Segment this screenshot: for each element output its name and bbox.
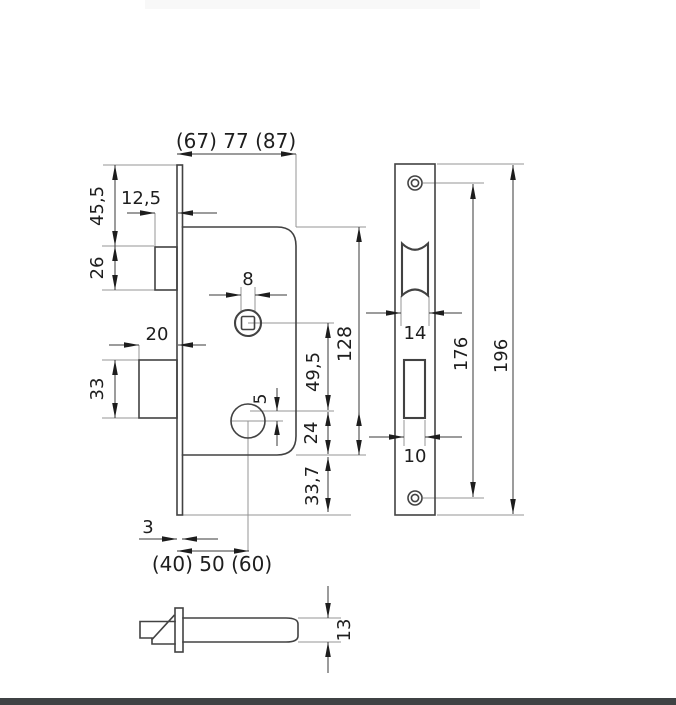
- dim-case-height: 128: [334, 227, 362, 455]
- dim-label-screw-hole-spacing: 176: [451, 337, 472, 371]
- dim-top-to-latch: 45,5: [87, 165, 118, 246]
- dim-ref-to-case-bottom: 24: [301, 412, 331, 454]
- dim-case-depth: (67) 77 (87): [176, 129, 296, 157]
- dim-plate-length: 196: [491, 165, 516, 514]
- dim-label-latch-cutout-width: 14: [404, 323, 427, 344]
- case-profile-outline: [183, 618, 298, 642]
- latch-bolt-body: [155, 247, 177, 290]
- screw-hole-bottom-inner: [411, 494, 418, 501]
- dim-backset: (40) 50 (60): [152, 548, 272, 576]
- dead-bolt-body: [139, 360, 177, 418]
- dim-screw-hole-spacing: 176: [451, 184, 476, 497]
- screw-hole-top: [408, 176, 422, 190]
- faceplate-profile: [175, 608, 183, 652]
- dim-latch-protrusion: 12,5: [121, 188, 217, 216]
- technical-drawing: (67) 77 (87) 45,5 26 12,5: [0, 0, 676, 698]
- screw-hole-bottom: [408, 491, 422, 505]
- faceplate-edge: [177, 165, 183, 515]
- dim-label-case-thickness: 13: [334, 619, 355, 642]
- screw-hole-top-inner: [411, 179, 418, 186]
- bottom-profile-view: [140, 608, 298, 652]
- dim-label-case-to-plate-bottom: 33,7: [302, 466, 323, 506]
- dim-bolt-cutout-width: 10: [369, 434, 462, 467]
- dim-bolt-protrusion: 20: [109, 324, 206, 348]
- dim-label-plate-length: 196: [491, 339, 512, 373]
- drawing-page: (67) 77 (87) 45,5 26 12,5: [0, 0, 676, 705]
- dim-label-case-height: 128: [334, 326, 356, 362]
- dim-label-bolt-protrusion: 20: [146, 324, 169, 345]
- latch-profile: [140, 616, 175, 645]
- footer-bar: [0, 698, 676, 705]
- dim-label-top-to-latch: 45,5: [87, 186, 108, 226]
- dim-label-spindle-square: 8: [242, 269, 253, 290]
- dim-label-plate-thickness: 3: [142, 517, 153, 538]
- latch-cutout: [402, 244, 428, 296]
- dim-bolt-height: 33: [87, 360, 118, 418]
- dim-latch-cutout-width: 14: [366, 310, 462, 344]
- dim-spindle-to-ref: 49,5: [303, 323, 331, 410]
- dim-label-bolt-cutout-width: 10: [404, 446, 427, 467]
- bolt-cutout: [404, 360, 425, 418]
- dim-label-backset: (40) 50 (60): [152, 552, 272, 576]
- dim-latch-height: 26: [87, 246, 118, 290]
- dim-plate-thickness: 3: [139, 517, 218, 542]
- dim-label-bolt-height: 33: [87, 378, 108, 401]
- dim-label-ref-to-cylinder: 5: [251, 394, 271, 405]
- dim-ref-to-cylinder: 5: [251, 388, 280, 446]
- dim-label-latch-protrusion: 12,5: [121, 188, 161, 209]
- dim-label-latch-height: 26: [87, 257, 108, 280]
- dim-spindle-square: 8: [209, 269, 287, 298]
- dim-label-spindle-to-ref: 49,5: [303, 352, 324, 392]
- dim-case-to-plate-bottom: 33,7: [302, 457, 331, 512]
- dim-case-thickness: 13: [325, 586, 355, 673]
- dim-label-case-depth: (67) 77 (87): [176, 129, 296, 153]
- dim-label-ref-to-case-bottom: 24: [301, 422, 322, 445]
